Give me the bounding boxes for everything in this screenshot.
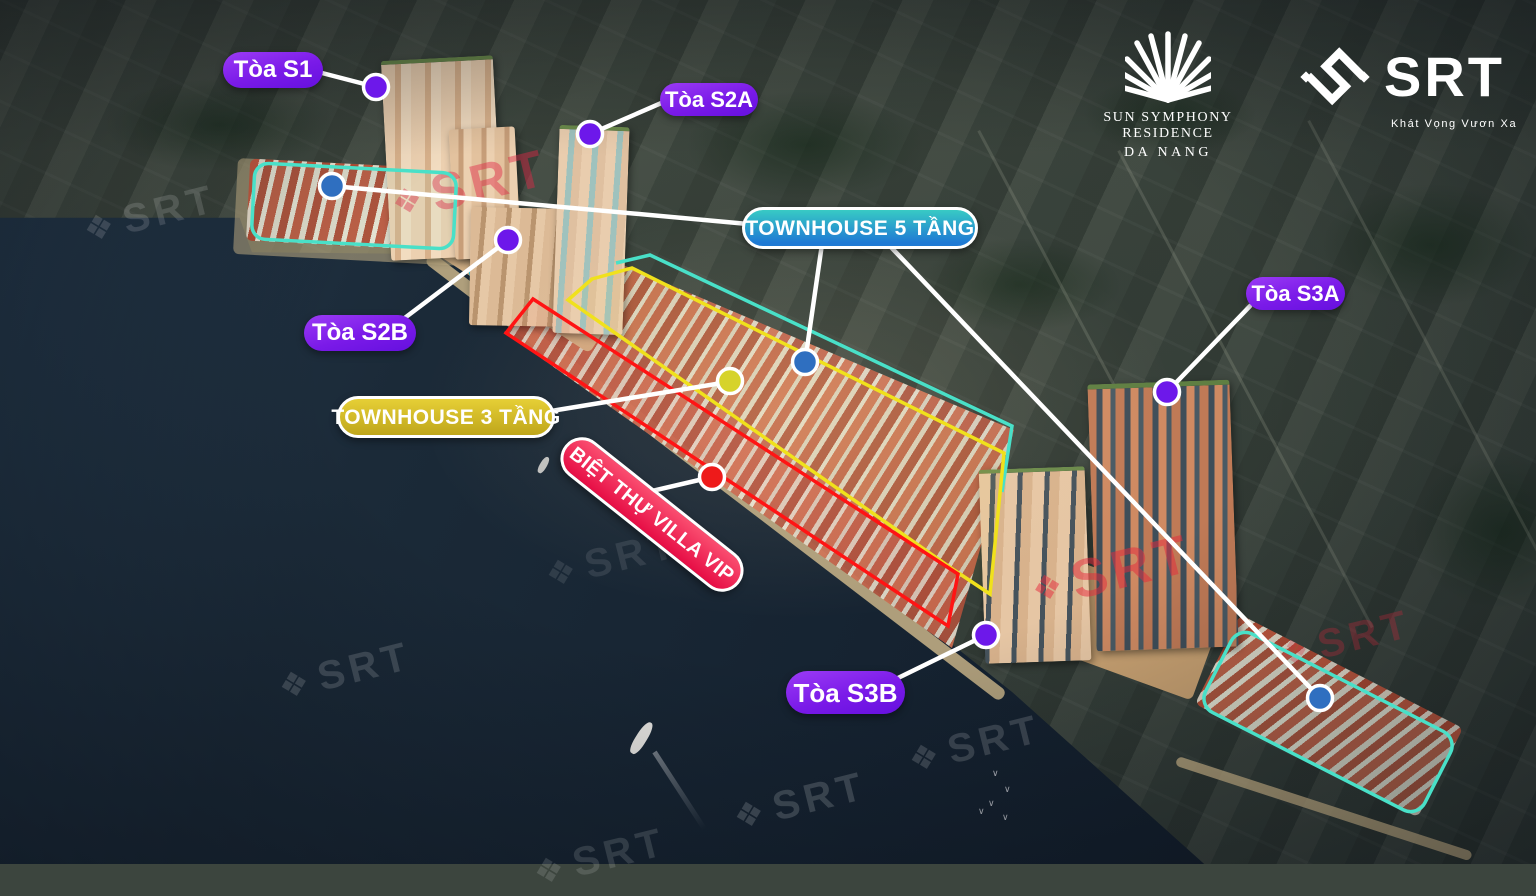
label-toa-s2a[interactable]: Tòa S2A bbox=[660, 83, 758, 116]
sun-fan-icon bbox=[1125, 26, 1211, 106]
label-toa-s2b[interactable]: Tòa S2B bbox=[304, 315, 416, 351]
label-townhouse-5-tang[interactable]: TOWNHOUSE 5 TẦNG bbox=[742, 207, 978, 249]
srt-logo: SRT Khát Vọng Vươn Xa bbox=[1298, 40, 1518, 130]
sun-symphony-logo: SUN SYMPHONY RESIDENCE DA NANG bbox=[1062, 26, 1274, 161]
label-toa-s3a[interactable]: Tòa S3A bbox=[1246, 277, 1345, 310]
srt-monogram-icon bbox=[1298, 40, 1372, 114]
label-toa-s3b[interactable]: Tòa S3B bbox=[786, 671, 905, 714]
label-townhouse-3-tang[interactable]: TOWNHOUSE 3 TẦNG bbox=[337, 396, 555, 438]
sun-logo-line1: SUN SYMPHONY RESIDENCE bbox=[1062, 110, 1274, 142]
srt-logo-name: SRT bbox=[1384, 49, 1505, 105]
srt-tagline: Khát Vọng Vươn Xa bbox=[1391, 118, 1517, 130]
label-toa-s1[interactable]: Tòa S1 bbox=[223, 52, 323, 88]
sun-logo-line2: DA NANG bbox=[1062, 145, 1274, 161]
srt-watermark-icon: ❖ bbox=[529, 848, 568, 894]
